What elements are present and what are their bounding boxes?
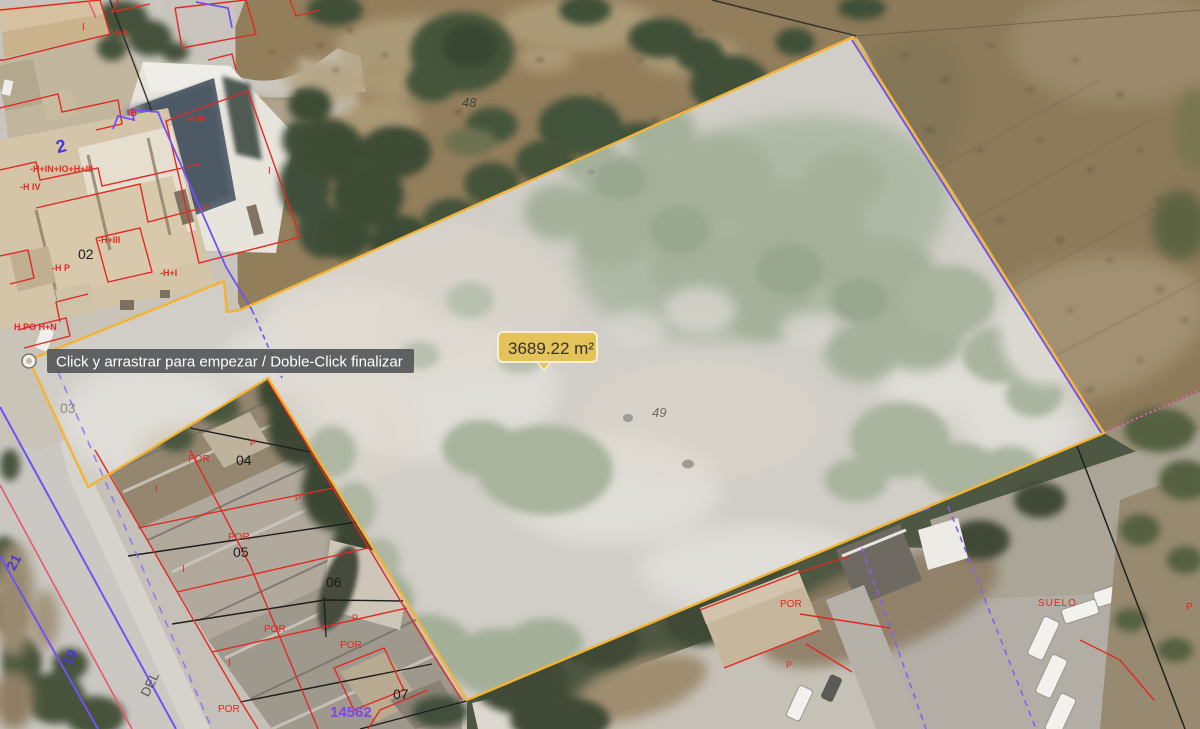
svg-text:IB: IB	[128, 108, 138, 118]
svg-text:I: I	[268, 166, 271, 177]
svg-text:I: I	[228, 658, 231, 669]
svg-text:48: 48	[462, 95, 477, 110]
svg-text:+I IB: +I IB	[186, 114, 206, 124]
svg-text:49: 49	[652, 405, 666, 420]
svg-text:I: I	[82, 22, 85, 33]
svg-text:07: 07	[393, 686, 409, 702]
svg-text:03: 03	[60, 400, 76, 416]
svg-text:-H+III: -H+III	[98, 235, 120, 245]
svg-text:06: 06	[326, 574, 342, 590]
svg-text:POR: POR	[228, 532, 250, 543]
svg-text:SUELO: SUELO	[1038, 598, 1077, 609]
svg-text:-H IV: -H IV	[20, 182, 41, 192]
svg-text:14562: 14562	[330, 704, 372, 721]
svg-text:I: I	[155, 484, 158, 495]
svg-text:POR: POR	[780, 599, 802, 610]
svg-text:POR: POR	[340, 640, 362, 651]
svg-text:POR: POR	[218, 704, 240, 715]
svg-text:P: P	[1186, 602, 1193, 613]
svg-text:P: P	[786, 660, 792, 670]
svg-text:I: I	[182, 564, 185, 575]
svg-text:POR: POR	[264, 624, 286, 635]
svg-text:H PO H+N: H PO H+N	[14, 322, 57, 332]
svg-text:02: 02	[78, 246, 94, 262]
svg-text:-H+I: -H+I	[160, 268, 177, 278]
svg-text:Click y arrastrar para empezar: Click y arrastrar para empezar / Doble-C…	[56, 354, 403, 371]
svg-text:POR: POR	[188, 454, 210, 465]
svg-text:05: 05	[233, 544, 249, 560]
svg-text:-H+IN+IO+H+III: -H+IN+IO+H+III	[30, 164, 93, 174]
svg-text:P: P	[250, 438, 256, 448]
svg-text:P: P	[295, 493, 301, 503]
svg-text:P: P	[352, 613, 358, 623]
svg-text:3689.22 m²: 3689.22 m²	[508, 339, 594, 358]
svg-text:-H P: -H P	[52, 263, 70, 273]
svg-text:-I+II: -I+II	[112, 28, 128, 38]
svg-text:04: 04	[236, 452, 252, 468]
